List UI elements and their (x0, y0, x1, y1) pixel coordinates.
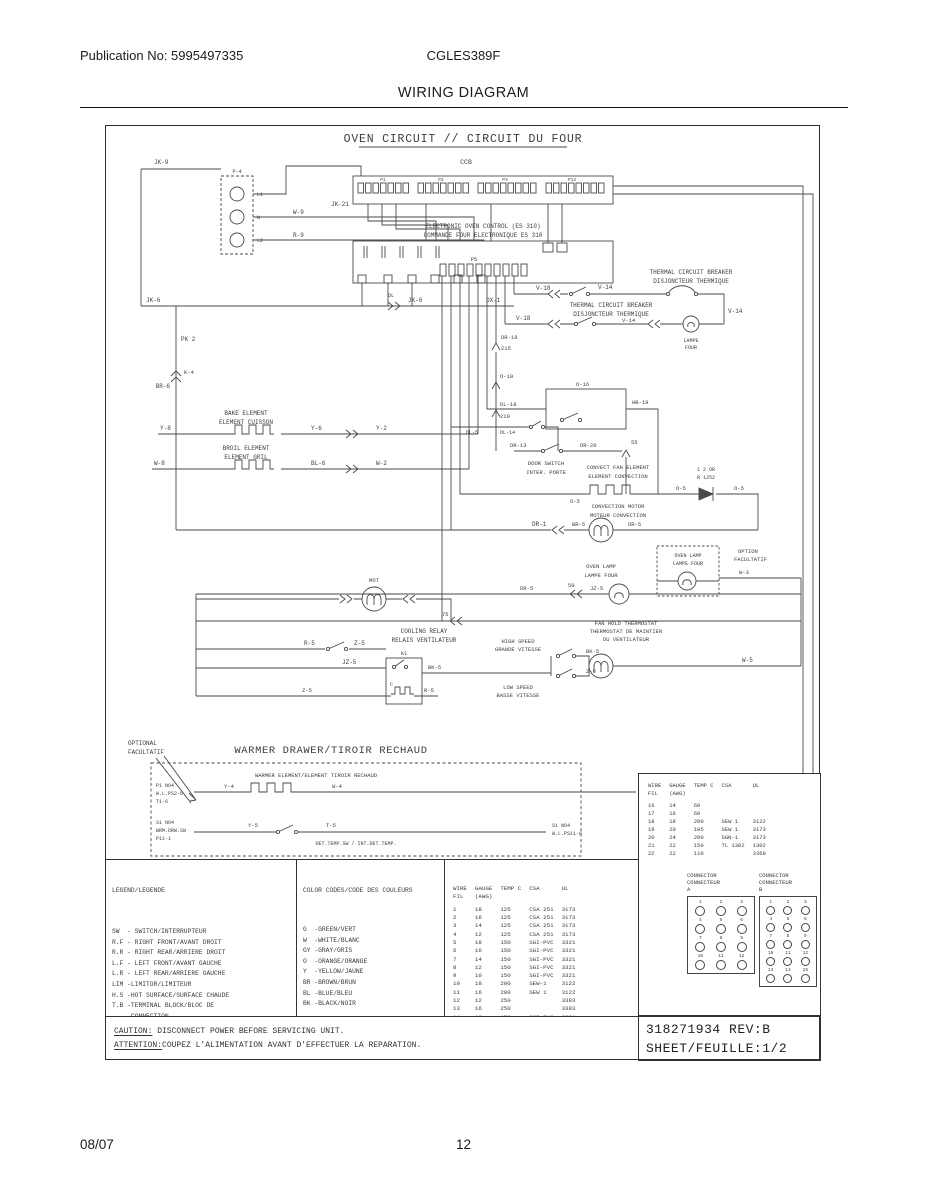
label-cm2: MOTEUR CONVECTION (590, 512, 646, 519)
column-header: CSA (525, 885, 557, 893)
table-cell: 7 (449, 956, 471, 964)
table-row: 1818200SEW 13122 (644, 818, 770, 826)
table-cell: 22 (644, 850, 665, 858)
pin-circle-icon (716, 906, 726, 916)
table-cell: CSA 251 (525, 922, 557, 930)
pin-circle-icon (766, 974, 775, 983)
label-jz5b: JZ-5 (342, 659, 357, 666)
table-cell: 150 (496, 964, 525, 972)
table-cell: 10 (471, 972, 496, 980)
table-cell: 200 (496, 989, 525, 997)
pin-circle-icon (783, 957, 792, 966)
connector-pin: 8 (779, 934, 796, 949)
label-door2: INTER. PORTE (526, 469, 566, 476)
label-ls2: BASSE VITESSE (497, 692, 541, 699)
label-bl6: BL-6 (311, 460, 326, 467)
label-ol1: OVEN LAMP (586, 563, 616, 570)
caution-line-fr: ATTENTION:COUPEZ L'ALIMENTATION AVANT D'… (114, 1039, 631, 1053)
table-header-row: FIL(AWG) (644, 790, 770, 802)
warmer-element-symbol (246, 783, 296, 792)
table-cell: 105 (690, 826, 718, 834)
table-cell: 3383 (558, 997, 580, 1005)
label-optional2: FACULTATIF (128, 749, 164, 756)
label-conv2: ELEMENT CONVECTION (588, 473, 647, 480)
interlock-box (546, 389, 626, 429)
table-cell: 4 (449, 931, 471, 939)
color-codes-lines: G -GREEN/VERTW -WHITE/BLANCGY -GRAY/GRIS… (303, 925, 438, 1010)
label-r9: R-9 (293, 232, 304, 239)
caution-line-en: CAUTION: DISCONNECT POWER BEFORE SERVICI… (114, 1025, 631, 1039)
label-fh3: DU VENTILATEUR (603, 636, 650, 643)
label-fh2: THERMOSTAT DE MAINTIEN (590, 628, 663, 635)
optional-lamp-symbol (678, 572, 696, 590)
table-cell: 11 (449, 989, 471, 997)
table-header-row: WIREGAUGETEMP CCSAUL (449, 885, 579, 893)
pin-number: 5 (711, 918, 732, 923)
table-cell: 3321 (558, 947, 580, 955)
label-lampa2: FOUR (685, 345, 697, 351)
connector-pin: 11 (779, 951, 796, 966)
cooling-relay-box (386, 658, 422, 704)
table-cell: 3173 (749, 834, 770, 842)
label-tcb1a: THERMAL CIRCUIT BREAKER (650, 269, 733, 276)
connector-pin: 5 (711, 918, 732, 934)
table-cell: 3383 (558, 1005, 580, 1013)
pin-number: 4 (690, 918, 711, 923)
table-cell: 17 (644, 810, 665, 818)
connector-pin: 14 (779, 968, 796, 983)
table-cell: 125 (496, 914, 525, 922)
label-jk9: JK-9 (154, 159, 169, 166)
column-header (749, 790, 770, 802)
label-cp2: P2 (438, 177, 444, 183)
label-br6: BR-6 (156, 383, 171, 390)
table-header-row: WIREGAUGETEMP CCSAUL (644, 782, 770, 790)
label-y6: Y-6 (311, 425, 322, 432)
table-cell: 14 (665, 802, 690, 810)
table-cell: 150 (496, 956, 525, 964)
connector-pin: 8 (711, 936, 732, 952)
label-jk6b: JK-6 (408, 297, 423, 304)
label-mot: MOT (369, 577, 380, 584)
label-n50: 50 (568, 582, 575, 589)
caution-box: CAUTION: DISCONNECT POWER BEFORE SERVICI… (106, 1016, 639, 1061)
table-cell: 13 (449, 1005, 471, 1013)
board-pin-marks (364, 246, 439, 258)
pin-number: 15 (797, 968, 814, 973)
label-o5c: O-5 (570, 498, 580, 505)
table-cell: 3321 (558, 956, 580, 964)
table-cell: 3173 (558, 931, 580, 939)
label-wl2b: WRM.DRW.SW (156, 828, 186, 834)
label-dio2: R 1252 (697, 475, 715, 481)
label-z5c: Z-5 (586, 668, 596, 675)
table-row: 171660 (644, 810, 770, 818)
label-bake1: BAKE ELEMENT (224, 410, 268, 417)
table-row: 12122503383 (449, 997, 579, 1005)
pin-number: 5 (779, 917, 796, 922)
table-cell: 5 (449, 939, 471, 947)
table-cell (749, 802, 770, 810)
table-cell: 3173 (558, 906, 580, 914)
label-z5a: Z-5 (354, 640, 365, 647)
label-bk5b: BK-5 (586, 648, 599, 655)
label-dr5b: DR-5 (520, 585, 533, 592)
manual-page: Publication No: 5995497335 CGLES389F WIR… (0, 0, 927, 1200)
label-w2: W-2 (376, 460, 387, 467)
table-cell: 20 (644, 834, 665, 842)
column-header: GAUGE (665, 782, 690, 790)
column-header (558, 893, 580, 905)
table-cell: 125 (496, 931, 525, 939)
table-cell: SGI-PVC (525, 972, 557, 980)
table-cell: 24 (665, 834, 690, 842)
connector-a-label2: CONNECTEUR (687, 879, 755, 886)
label-ol2: LAMPE FOUR (584, 572, 618, 579)
column-header: FIL (644, 790, 665, 802)
table-cell: 3173 (558, 922, 580, 930)
table-cell: 150 (496, 939, 525, 947)
label-o5a: O-5 (676, 485, 686, 492)
connector-pin: 1 (690, 900, 711, 916)
table-cell: 1 (449, 906, 471, 914)
table-cell: 200 (690, 834, 718, 842)
label-lampa1: LAMPE (683, 338, 698, 344)
table-cell: 150 (496, 947, 525, 955)
label-y2: Y-2 (376, 425, 387, 432)
pin-number: 13 (762, 968, 779, 973)
table-cell: 16 (471, 914, 496, 922)
table-cell: 22 (665, 842, 690, 850)
pin-number: 11 (779, 951, 796, 956)
table-cell: 12 (471, 997, 496, 1005)
connector-b-label1: CONNECTOR (759, 872, 817, 879)
pin-number: 12 (797, 951, 814, 956)
text-line: R.R - RIGHT REAR/ARRIERE DROIT (112, 948, 290, 959)
table-cell: 12 (449, 997, 471, 1005)
table-cell: 22 (665, 850, 690, 858)
caution-text-fr: COUPEZ L'ALIMENTATION AVANT D'EFFECTUER … (162, 1041, 421, 1050)
table-cell: 250 (496, 997, 525, 1005)
label-w5: W-5 (742, 657, 753, 664)
column-header (690, 790, 718, 802)
label-cp3: P3 (502, 177, 508, 183)
pin-circle-icon (695, 942, 705, 952)
label-ls1: LOW SPEED (503, 684, 533, 691)
table-cell: 10 (449, 980, 471, 988)
table-cell: 9 (449, 972, 471, 980)
table-cell: 150 (690, 842, 718, 850)
connector-pin: 15 (797, 968, 814, 983)
connector-pin: 7 (762, 934, 779, 949)
label-conv1: CONVECT FAN ELEMENT (587, 464, 650, 471)
connector-a-label1: CONNECTOR (687, 872, 755, 879)
table-cell: 200 (690, 818, 718, 826)
table-cell: 125 (496, 922, 525, 930)
pin-number: 2 (779, 900, 796, 905)
label-opt2: FACULTATIF (734, 556, 767, 563)
connector-pin: 12 (797, 951, 814, 966)
sheet-number: SHEET/FEUILLE:1/2 (646, 1039, 813, 1058)
label-l1: L1 (257, 192, 263, 198)
power-connector-outline (221, 176, 253, 254)
table-cell: SEW 1 (718, 826, 749, 834)
label-eoc1: ELECTRONIC OVEN CONTROL (ES 310) (425, 223, 540, 230)
pin-number: 9 (797, 934, 814, 939)
connector-pin: 10 (690, 954, 711, 970)
label-cp12: P12 (568, 177, 576, 183)
table-row: 314125CSA 2513173 (449, 922, 579, 930)
text-line: T.B -TERMINAL BLOCK/BLOC DE (112, 1001, 290, 1012)
table-cell: 60 (690, 802, 718, 810)
label-warmer-element: WARMER ELEMENT/ELEMENT TIROIR RECHAUD (255, 772, 378, 779)
table-row: 910150SGI-PVC3321 (449, 972, 579, 980)
table-cell: 18 (471, 939, 496, 947)
pin-circle-icon (766, 940, 775, 949)
table-cell: 3321 (558, 964, 580, 972)
board-terminals (358, 243, 567, 283)
connector-pin: 10 (762, 951, 779, 966)
table-cell: SGI-PVC (525, 947, 557, 955)
label-hs2: GRANDE VITESSE (495, 646, 542, 653)
reference-box: 318271934 REV:B SHEET/FEUILLE:1/2 (638, 1016, 821, 1061)
label-cr2: RELAIS VENTILATEUR (392, 637, 457, 644)
table-cell: 16 (665, 810, 690, 818)
label-r5a: R-5 (304, 640, 315, 647)
pin-circle-icon (737, 960, 747, 970)
table-cell: 60 (690, 810, 718, 818)
label-y5: Y-5 (248, 822, 258, 829)
table-row: 1116200SEW 13122 (449, 989, 579, 997)
pin-number: 3 (797, 900, 814, 905)
table-row: 161460 (644, 802, 770, 810)
label-tcb1b: DISJONCTEUR THERMIQUE (653, 278, 729, 285)
label-ccb: CCB (460, 159, 472, 166)
text-line: W -WHITE/BLANC (303, 936, 438, 947)
table-cell: SEW 1 (525, 989, 557, 997)
table-row: 714150SGI-PVC3321 (449, 956, 579, 964)
table-row: 616150SGI-PVC3321 (449, 947, 579, 955)
text-line: L.R - LEFT REAR/ARRIERE GAUCHE (112, 969, 290, 980)
pin-circle-icon (716, 942, 726, 952)
pin-circle-icon (766, 923, 775, 932)
label-dl14: DL-14 (500, 430, 515, 436)
pin-circle-icon (801, 923, 810, 932)
column-header: (AWG) (471, 893, 496, 905)
pin-circle-icon (783, 906, 792, 915)
label-f219: 219 (500, 413, 510, 420)
connector-pin: 2 (779, 900, 796, 915)
pin-circle-icon (695, 924, 705, 934)
table-cell: 250 (496, 1005, 525, 1013)
connector-b-pins: 123456789101112131415 (759, 896, 817, 987)
label-tcb2a: THERMAL CIRCUIT BREAKER (570, 302, 653, 309)
connector-pin: 3 (731, 900, 752, 916)
connector-pin: 1 (762, 900, 779, 915)
connector-pin: 6 (797, 917, 814, 932)
color-codes-header: COLOR CODES/CODE DES COULEURS (303, 886, 438, 897)
color-codes-cell: COLOR CODES/CODE DES COULEURS G -GREEN/V… (296, 860, 444, 1016)
model-number: CGLES389F (0, 48, 927, 63)
connector-pin: 7 (690, 936, 711, 952)
connector-b: CONNECTOR CONNECTEUR B 12345678910111213… (759, 872, 817, 987)
connector-b-label2: CONNECTEUR (759, 879, 817, 886)
column-header: (AWG) (665, 790, 690, 802)
connector-pin: 11 (711, 954, 732, 970)
oven-light-symbol (683, 316, 699, 332)
label-f215: 215 (501, 345, 511, 352)
label-n: N (257, 215, 260, 221)
label-l2: L2 (257, 238, 263, 244)
table-cell (718, 810, 749, 818)
table-cell: CSA 251 (525, 906, 557, 914)
table-row: 22221103369 (644, 850, 770, 858)
pin-number: 2 (711, 900, 732, 905)
label-z5b: Z-5 (302, 687, 312, 694)
diode-symbol (699, 487, 713, 501)
wiring-diagram-frame: OVEN CIRCUIT // CIRCUIT DU FOUR (105, 125, 820, 1060)
table-row: 1018200SEW-13122 (449, 980, 579, 988)
footer-page-number: 12 (0, 1137, 927, 1152)
column-header: UL (749, 782, 770, 790)
part-number: 318271934 REV:B (646, 1020, 813, 1039)
table-cell: 2 (449, 914, 471, 922)
label-f55: 55 (631, 439, 638, 446)
label-bk5a: BK-5 (428, 664, 441, 671)
ccb-pin-strips (358, 183, 604, 193)
label-jk21: JK-21 (331, 201, 349, 208)
connector-a-pins: 123456789101112 (687, 896, 755, 974)
connector-panel: WIREGAUGETEMP CCSAULFIL(AWG)161460171660… (638, 773, 821, 1016)
table-cell: 3369 (749, 850, 770, 858)
convection-motor-symbol (589, 518, 613, 542)
column-header: WIRE (644, 782, 665, 790)
table-cell: 3122 (558, 989, 580, 997)
column-header: TEMP C (690, 782, 718, 790)
bake-element-symbol (231, 425, 274, 434)
table-cell (525, 1005, 557, 1013)
pin-circle-icon (766, 906, 775, 915)
pin-number: 8 (711, 936, 732, 941)
connector-pin: 2 (711, 900, 732, 916)
table-cell (749, 810, 770, 818)
title-rule (80, 107, 848, 108)
table-cell: 8 (449, 964, 471, 972)
caution-text-en: DISCONNECT POWER BEFORE SERVICING UNIT. (152, 1027, 344, 1036)
label-k4: K-4 (184, 369, 195, 376)
table-cell: SGI-PVC (525, 956, 557, 964)
label-jz5a: JZ-5 (590, 585, 603, 592)
label-dr5a: DR-5 (628, 521, 641, 528)
pin-circle-icon (695, 906, 705, 916)
table-cell: 18 (665, 818, 690, 826)
pin-circle-icon (801, 974, 810, 983)
table-cell: 12 (471, 964, 496, 972)
label-dr18: DR-18 (501, 334, 518, 341)
label-opl1: OVEN LAMP (674, 553, 701, 559)
caution-label-en: CAUTION: (114, 1027, 152, 1036)
column-header (525, 893, 557, 905)
label-cm1: CONVECTION MOTOR (592, 503, 646, 510)
pin-circle-icon (766, 957, 775, 966)
pin-number: 6 (731, 918, 752, 923)
column-header: UL (558, 885, 580, 893)
table-cell: 19 (644, 826, 665, 834)
pin-circle-icon (737, 906, 747, 916)
table-row: 518150SGI-PVC3321 (449, 939, 579, 947)
table-cell: 3321 (558, 939, 580, 947)
table-cell: 12 (471, 931, 496, 939)
connector-pin: 5 (779, 917, 796, 932)
label-v18a: V-18 (536, 285, 551, 292)
pin-circle-icon (695, 960, 705, 970)
label-ww4: W-4 (332, 783, 343, 790)
label-y8: Y-8 (160, 425, 171, 432)
label-w9: W-9 (293, 209, 304, 216)
label-cc: C (390, 682, 393, 688)
table-cell: 20 (665, 826, 690, 834)
label-k1: K1 (401, 650, 408, 657)
column-header: TEMP C (496, 885, 525, 893)
table-cell: CSA 251 (525, 914, 557, 922)
table-cell: 16 (644, 802, 665, 810)
label-broil1: BROIL ELEMENT (223, 445, 270, 452)
text-line: L.F - LEFT FRONT/AVANT GAUCHE (112, 959, 290, 970)
p5-pin-strip (440, 264, 527, 276)
table-row: 812150SGI-PVC3321 (449, 964, 579, 972)
text-line: G -GREEN/VERT (303, 925, 438, 936)
table-cell: 1302 (749, 842, 770, 850)
connector-pin: 3 (797, 900, 814, 915)
label-broil2: ELEMENT GRIL (224, 454, 268, 461)
table-cell (718, 802, 749, 810)
label-tcb2b: DISJONCTEUR THERMIQUE (573, 311, 649, 318)
column-header (496, 893, 525, 905)
label-fh1: FAN HOLD THERMOSTAT (595, 620, 658, 627)
table-cell: 18 (471, 980, 496, 988)
pin-circle-icon (783, 923, 792, 932)
label-dr20: DR-20 (580, 442, 597, 449)
table-cell: 3 (449, 922, 471, 930)
text-line: BL -BLUE/BLEU (303, 989, 438, 1000)
table-cell: 3173 (558, 914, 580, 922)
label-opl2: LAMPE FOUR (673, 561, 703, 567)
label-v14b: V-14 (728, 308, 743, 315)
table-cell: 150 (496, 972, 525, 980)
table-cell: 21 (644, 842, 665, 850)
table-cell: 200 (496, 980, 525, 988)
label-w3: W-3 (739, 569, 749, 576)
label-eoc2: COMMANDE FOUR ELECTRONIQUE ES 310 (424, 232, 543, 239)
column-header: WIRE (449, 885, 471, 893)
label-dx1: DX-1 (486, 297, 501, 304)
connector-pin: 12 (731, 954, 752, 970)
text-line: R.F - RIGHT FRONT/AVANT DROIT (112, 938, 290, 949)
table-cell: 14 (471, 922, 496, 930)
table-row: 216125CSA 2513173 (449, 914, 579, 922)
pin-number: 1 (690, 900, 711, 905)
column-header: CSA (718, 782, 749, 790)
label-wr2: W.L.PS11-6 (552, 831, 582, 837)
label-p5: P5 (471, 256, 478, 263)
relay-coil (391, 687, 414, 694)
table-cell: 3321 (558, 972, 580, 980)
pin-number: 4 (762, 917, 779, 922)
table-cell: 3173 (749, 826, 770, 834)
label-wl2c: P11-1 (156, 836, 171, 842)
column-header (718, 790, 749, 802)
label-bake2: ELEMENT CUISSON (219, 419, 273, 426)
